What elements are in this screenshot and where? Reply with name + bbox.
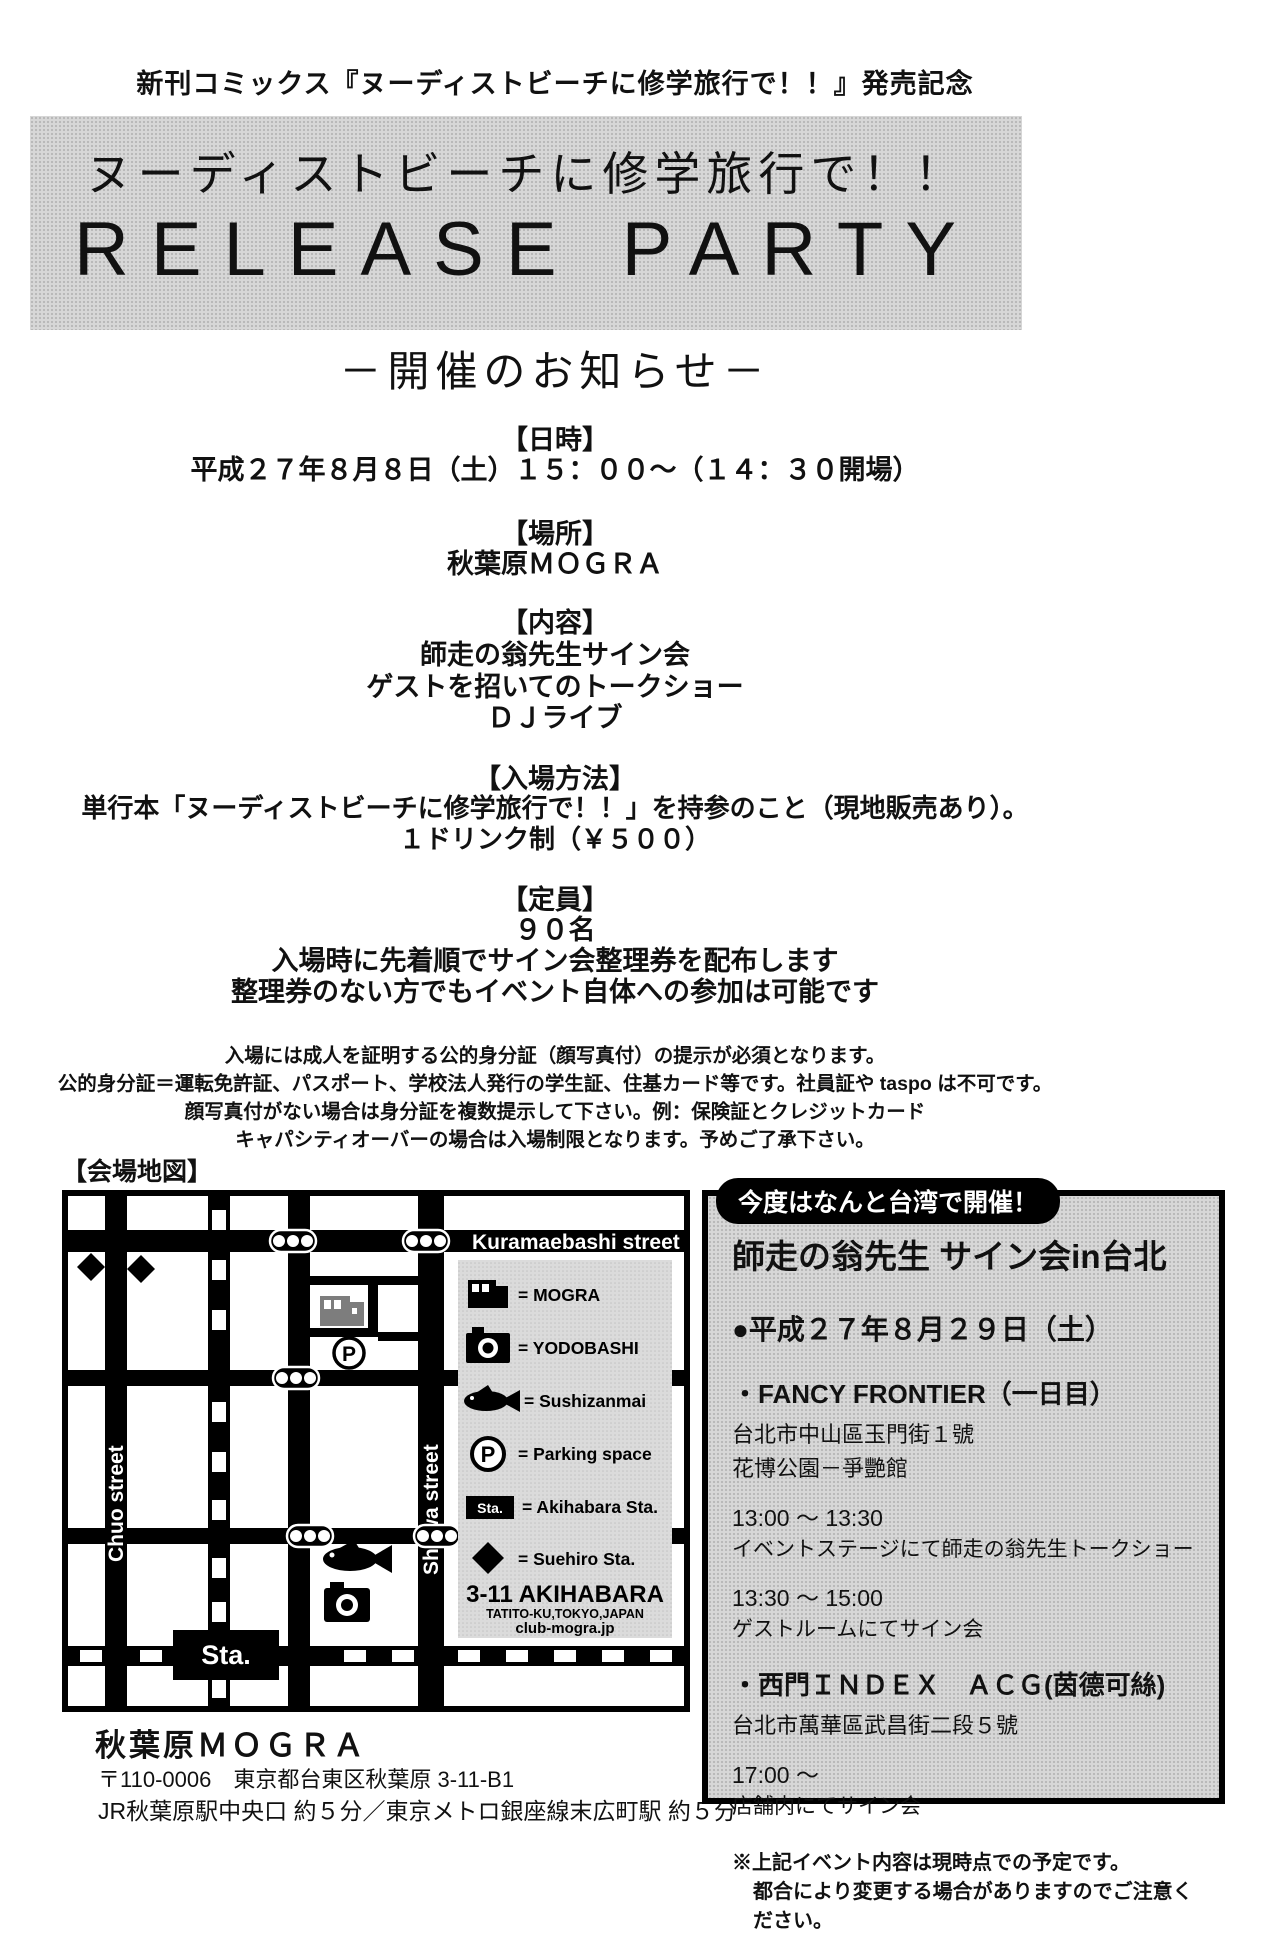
taiwan-venue1-desc2: ゲストルームにてサイン会 bbox=[732, 1613, 1205, 1643]
svg-text:Sta.: Sta. bbox=[201, 1640, 251, 1670]
station-icon: Sta. bbox=[466, 1496, 514, 1519]
taiwan-venue2-time: 17:00 ～ bbox=[732, 1756, 1205, 1790]
akihabara-station-box: Sta. bbox=[173, 1630, 279, 1680]
legend-label: = MOGRA bbox=[518, 1285, 601, 1305]
taiwan-note: 都合により変更する場合がありますのでご注意ください。 bbox=[732, 1875, 1205, 1933]
legend-label: = Akihabara Sta. bbox=[522, 1497, 658, 1517]
traffic-light-icon bbox=[287, 1525, 333, 1547]
taiwan-date: ●平成２７年８月２９日（土） bbox=[732, 1308, 1205, 1348]
entry-line: １ドリンク制（￥５００） bbox=[40, 824, 1070, 855]
entry-heading: 【入場方法】 bbox=[40, 763, 1070, 795]
taiwan-event-panel: 今度はなんと台湾で開催！ 師走の翁先生 サイン会in台北 ●平成２７年８月２９日… bbox=[702, 1190, 1225, 1804]
street-label-showa: Showa street bbox=[420, 1444, 443, 1575]
contents-line: ＤＪライブ bbox=[40, 702, 1070, 734]
svg-text:P: P bbox=[342, 1343, 356, 1366]
entry-notes: 入場には成人を証明する公的身分証（顔写真付）の提示が必須となります。 公的身分証… bbox=[40, 1042, 1070, 1154]
taiwan-venue2-name: ・西門ＩＮＤＥＸ ＡＣＧ(茵德可絲) bbox=[732, 1665, 1205, 1702]
taiwan-venue1-address: 台北市中山區玉門街１號 bbox=[732, 1417, 1205, 1449]
camera-icon bbox=[324, 1582, 370, 1622]
venue-postal-address: 〒110-0006 東京都台東区秋葉原 3-11-B1 bbox=[98, 1762, 514, 1794]
capacity-line: ９０名 bbox=[40, 914, 1070, 946]
traffic-light-icon bbox=[270, 1230, 316, 1252]
note-line: 顔写真付がない場合は身分証を複数提示して下さい。例：保険証とクレジットカード bbox=[40, 1098, 1070, 1126]
top-note: 新刊コミックス『ヌーディストビーチに修学旅行で！！』発売記念 bbox=[40, 62, 1070, 101]
note-line: キャパシティオーバーの場合は入場制限となります。予めご了承下さい。 bbox=[40, 1126, 1070, 1154]
note-line: 公的身分証＝運転免許証、パスポート、学校法人発行の学生証、住基カード等です。社員… bbox=[40, 1070, 1070, 1098]
taiwan-venue1-time1: 13:00 ～ 13:30 bbox=[732, 1499, 1205, 1533]
venue-map: Kuramaebashi street Chuo street Showa st… bbox=[62, 1190, 690, 1717]
legend-label: = YODOBASHI bbox=[518, 1338, 639, 1358]
taiwan-badge: 今度はなんと台湾で開催！ bbox=[716, 1178, 1060, 1224]
banner-title-english: RELEASE PARTY bbox=[30, 212, 1022, 288]
datetime-value: 平成２７年８月８日（土）１５：００～（１４：３０開場） bbox=[40, 454, 1070, 486]
legend-label: = Parking space bbox=[518, 1444, 652, 1464]
legend-label: = Suehiro Sta. bbox=[518, 1549, 635, 1569]
datetime-heading: 【日時】 bbox=[40, 424, 1070, 456]
parking-icon: P bbox=[334, 1338, 364, 1368]
svg-text:P: P bbox=[481, 1442, 496, 1467]
street-label-chuo: Chuo street bbox=[105, 1445, 128, 1562]
taiwan-title: 師走の翁先生 サイン会in台北 bbox=[732, 1230, 1205, 1278]
parking-icon: P bbox=[472, 1438, 504, 1470]
traffic-light-icon bbox=[414, 1525, 460, 1547]
venue-name: 秋葉原ＭＯＧＲＡ bbox=[95, 1720, 367, 1765]
subtitle: －開催のお知らせ－ bbox=[40, 338, 1070, 399]
taiwan-venue1-time2: 13:30 ～ 15:00 bbox=[732, 1579, 1205, 1613]
traffic-light-icon bbox=[273, 1367, 319, 1389]
banner-title-japanese: ヌーディストビーチに修学旅行で！！ bbox=[30, 138, 1022, 204]
contents-line: 師走の翁先生サイン会 bbox=[40, 639, 1070, 671]
contents-heading: 【内容】 bbox=[40, 607, 1070, 639]
capacity-line: 入場時に先着順でサイン会整理券を配布します bbox=[40, 945, 1070, 977]
place-heading: 【場所】 bbox=[40, 518, 1070, 550]
taiwan-venue1-desc1: イベントステージにて師走の翁先生トークショー bbox=[732, 1533, 1205, 1563]
capacity-heading: 【定員】 bbox=[40, 884, 1070, 916]
taiwan-venue2-address: 台北市萬華區武昌街二段５號 bbox=[732, 1708, 1205, 1740]
legend-address-line: TATITO-KU,TOKYO,JAPAN bbox=[486, 1607, 644, 1621]
taiwan-venue2-desc: 店舗内にてサイン会 bbox=[732, 1790, 1205, 1820]
contents-line: ゲストを招いてのトークショー bbox=[40, 671, 1070, 703]
place-value: 秋葉原ＭＯＧＲＡ bbox=[40, 548, 1070, 580]
taiwan-venue1-address2: 花博公園－爭艷館 bbox=[732, 1451, 1205, 1483]
street-label-kuramaebashi: Kuramaebashi street bbox=[472, 1231, 680, 1254]
map-heading: 【会場地図】 bbox=[62, 1152, 212, 1188]
taiwan-venue1-name: ・FANCY FRONTIER（一日目） bbox=[732, 1374, 1205, 1411]
svg-text:Sta.: Sta. bbox=[477, 1500, 503, 1516]
taiwan-note: ※上記イベント内容は現時点での予定です。 bbox=[732, 1846, 1205, 1875]
legend-address-line: 3-11 AKIHABARA bbox=[466, 1581, 664, 1608]
capacity-line: 整理券のない方でもイベント自体への参加は可能です bbox=[40, 976, 1070, 1008]
venue-access-info: JR秋葉原駅中央口 約５分／東京メトロ銀座線末広町駅 約５分 bbox=[98, 1792, 737, 1826]
map-legend: = MOGRA = YODOBASHI = Sushizanmai P = Pa… bbox=[458, 1260, 672, 1638]
legend-address-line: club-mogra.jp bbox=[515, 1620, 614, 1637]
title-banner: ヌーディストビーチに修学旅行で！！ RELEASE PARTY bbox=[30, 116, 1022, 330]
legend-label: = Sushizanmai bbox=[524, 1391, 646, 1411]
note-line: 入場には成人を証明する公的身分証（顔写真付）の提示が必須となります。 bbox=[40, 1042, 1070, 1070]
entry-line: 単行本「ヌーディストビーチに修学旅行で！！」を持参のこと（現地販売あり）。 bbox=[40, 793, 1070, 824]
traffic-light-icon bbox=[403, 1230, 449, 1252]
map-road-center-vertical bbox=[288, 1196, 310, 1706]
